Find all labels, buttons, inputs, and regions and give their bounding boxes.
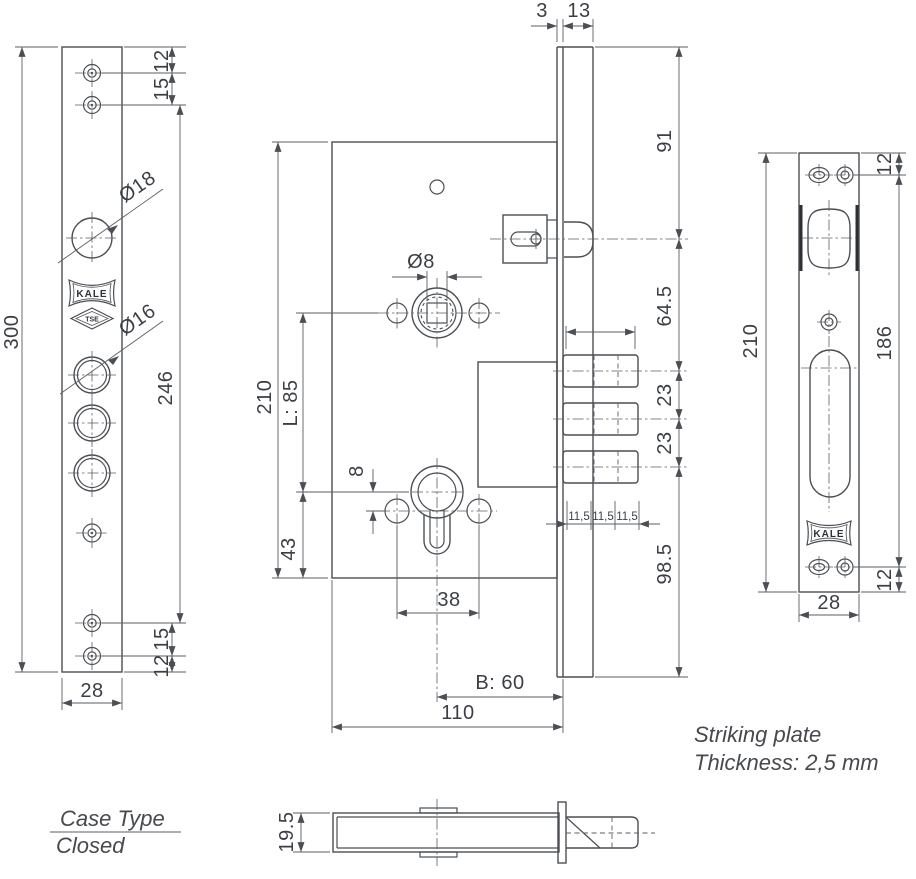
dim-23a-label: 23 (654, 383, 676, 406)
dim-left-28: 28 (62, 678, 122, 710)
dim-38-label: 38 (437, 589, 460, 611)
leader-dia16: Ø16 (60, 300, 163, 394)
left-faceplate-view: KALE TSE (1, 47, 186, 710)
dim-19-5: 19.5 (276, 812, 330, 853)
bottom-case-outline (333, 813, 559, 852)
kale-logo-text: KALE (76, 289, 107, 300)
dim-13-label: 13 (567, 0, 590, 22)
dim-left-top-15: 15 (151, 77, 173, 100)
dim-19-5-label: 19.5 (276, 812, 298, 853)
dim-left-bottom-15: 15 (151, 627, 173, 650)
deadbolt-body (478, 362, 557, 487)
dim-110-label: 110 (441, 702, 474, 724)
dim-left-300-label: 300 (1, 315, 23, 350)
dim-pin-length (566, 326, 635, 349)
dim-striker-186-label: 186 (874, 326, 896, 361)
dim-left-246-label: 246 (155, 371, 177, 406)
dim-b60-label: B: 60 (475, 672, 524, 694)
dim-210-label: 210 (254, 380, 276, 415)
dim-l85-label: L: 85 (280, 380, 302, 427)
striker-latch-opening (801, 200, 857, 277)
left-hole-dia18 (66, 212, 118, 264)
dim-38: 38 (397, 525, 479, 619)
dim-left-246: 246 (155, 105, 180, 623)
dim-left-bottom-offsets: 15 12 (102, 623, 186, 678)
case-type-label: Case Type (60, 806, 165, 831)
spindle-hub (378, 278, 500, 350)
bottom-latch-bolt (566, 817, 655, 848)
tse-logo: TSE (71, 308, 113, 329)
dim-striker-210-label: 210 (740, 324, 762, 359)
leader-dia18: Ø18 (58, 167, 163, 263)
case-type-value: Closed (56, 833, 125, 858)
left-bottom-screw-holes (75, 609, 109, 670)
dim-23b-label: 23 (654, 431, 676, 454)
dim-striker-12bot-label: 12 (874, 568, 896, 591)
left-holes-dia16 (68, 351, 116, 497)
kale-logo: KALE (69, 280, 115, 306)
dim-left-bottom-12: 12 (151, 654, 173, 677)
tse-logo-text: TSE (85, 317, 99, 324)
striking-note-line1: Striking plate (694, 722, 821, 747)
dim-91-label: 91 (654, 129, 676, 152)
dim-8-label: 8 (346, 465, 368, 477)
dim-3-label: 3 (536, 0, 548, 22)
striking-note-line2: Thickness: 2,5 mm (694, 750, 879, 775)
striker-bottom-holes (805, 556, 856, 578)
dim-striker-right-chain: 12 186 12 (854, 152, 906, 592)
dim-faceplate-top: 3 13 (531, 0, 593, 42)
technical-drawing-page: KALE TSE (0, 0, 916, 879)
dim-pin-seg3: 11,5 (616, 511, 638, 523)
case-top-hole (430, 180, 444, 194)
striker-deadbolt-slot (801, 336, 857, 512)
bottom-profile-view: 19.5 (276, 799, 655, 866)
dim-striker-12top-label: 12 (874, 152, 896, 175)
dim-cylinder-offset-8: 8 (346, 465, 386, 534)
left-top-screw-holes (75, 59, 109, 119)
dim-pin-seg1: 11,5 (568, 511, 590, 523)
striker-top-holes (805, 164, 856, 186)
dim-striker-210: 210 (740, 153, 797, 592)
striker-kale-logo-text: KALE (813, 529, 844, 540)
dim-left-top-offsets: 12 15 (102, 47, 186, 105)
dim-striker-28: 28 (799, 592, 859, 622)
latch-assembly (490, 215, 688, 263)
center-lock-case-view: Ø8 (254, 0, 688, 733)
striker-kale-logo: KALE (807, 521, 851, 545)
dim-98-5-label: 98.5 (654, 544, 676, 585)
left-center-hole (76, 518, 108, 548)
case-type-note: Case Type Closed (50, 806, 181, 858)
latch-bolt (564, 222, 593, 257)
dim-left-300: 300 (1, 47, 58, 672)
lock-technical-drawing: KALE TSE (0, 0, 916, 879)
dim-dia8-label: Ø8 (407, 251, 435, 273)
dim-left-top-12: 12 (151, 49, 173, 72)
dim-right-chain: 91 64.5 23 23 98.5 (595, 47, 688, 677)
dim-43-label: 43 (278, 537, 300, 560)
striking-plate-note: Striking plate Thickness: 2,5 mm (694, 722, 879, 775)
dim-left-28-label: 28 (80, 680, 103, 702)
dim-64-5-label: 64.5 (654, 286, 676, 327)
dim-pin-seg2: 11,5 (592, 511, 614, 523)
striker-mid-screw-hole (817, 310, 841, 334)
deadbolt-pins (553, 355, 688, 483)
striking-plate-view: KALE 210 12 186 12 (740, 152, 906, 622)
dim-striker-28-label: 28 (817, 592, 840, 614)
